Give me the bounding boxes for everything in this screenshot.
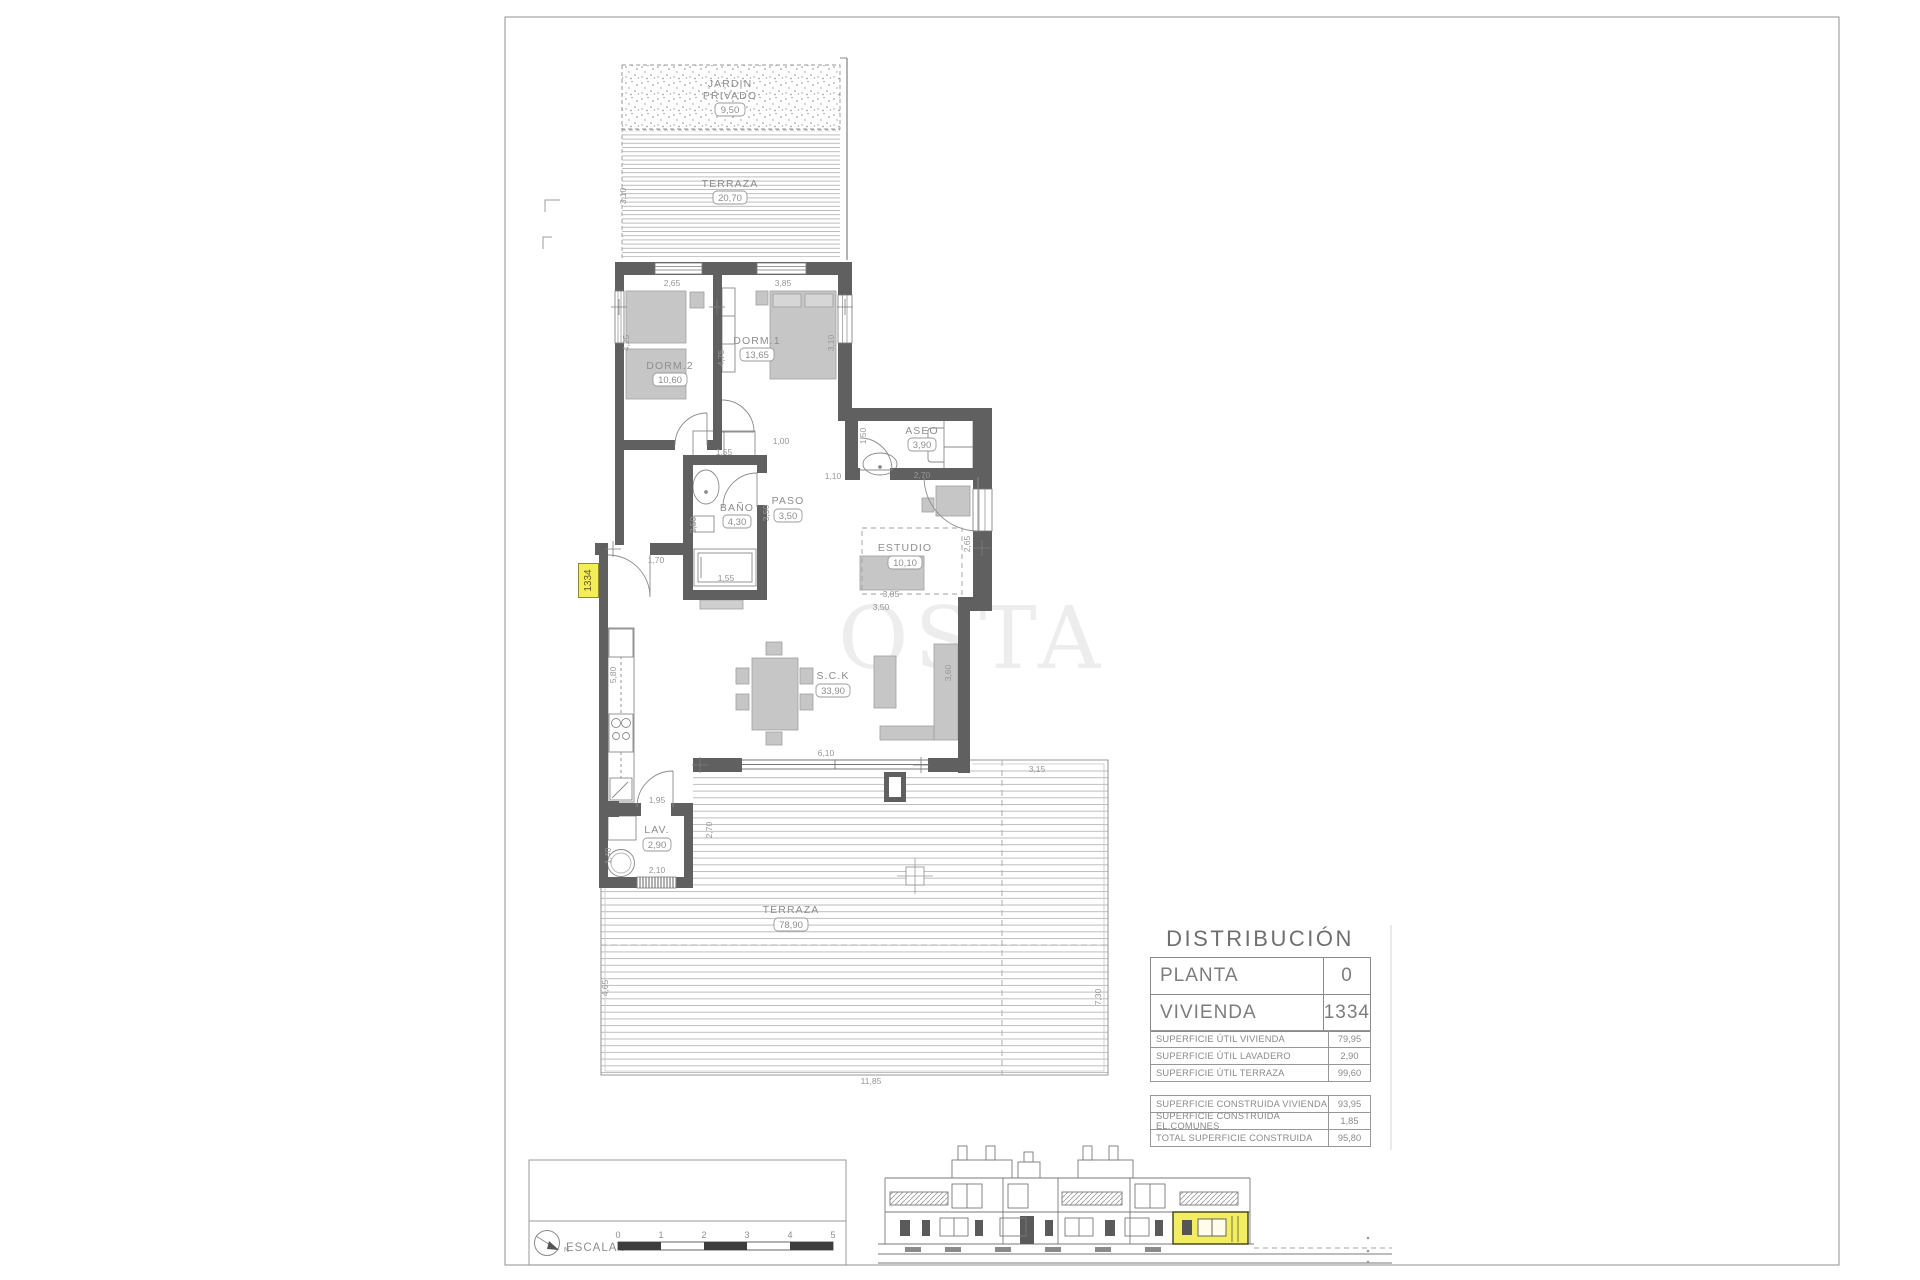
table-row: TOTAL SUPERFICIE CONSTRUIDA 95,80 [1151,1129,1370,1146]
surf-util-terraza-label: SUPERFICIE ÚTIL TERRAZA [1151,1068,1328,1078]
dim-dorm1-ancho: 3,10 [826,334,836,351]
scale-tick-4: 4 [787,1230,792,1240]
dim-dorm2-alto: 4,25 [621,334,631,351]
scale-tick-2: 2 [701,1230,706,1240]
nightstand-dorm1 [756,291,768,305]
bed-dorm2-a [626,291,686,343]
dim-terraza-ancho: 11,85 [861,1076,882,1086]
area-paso: 3,50 [779,511,798,522]
dim-paso-sup: 1,00 [773,436,790,446]
dim-lav-alto: 2,70 [704,821,714,838]
area-terraza-sup: 20,70 [718,193,742,204]
planta-value: 0 [1323,958,1370,994]
surf-built-total-label: TOTAL SUPERFICIE CONSTRUIDA [1151,1133,1328,1143]
area-estudio: 10,10 [893,558,917,569]
table-row: VIVIENDA 1334 [1151,994,1370,1031]
area-aseo: 3,90 [913,440,932,451]
surf-built-comunes-value: 1,85 [1328,1113,1370,1129]
sofa-chaise [880,726,934,740]
dim-bano-alto: 2,50 [688,516,698,533]
lav-counter [608,816,636,840]
dim-lav-ancho: 2,10 [649,865,666,875]
room-label-estudio: ESTUDIO [878,542,932,554]
room-label-jardin-2: PRIVADO [703,90,757,102]
dim-salon-ancho: 6,10 [818,748,835,758]
room-label-sck: S.C.K [817,670,850,682]
plan-sheet-screenshot: OSTA [0,0,1920,1280]
vivienda-label: VIVIENDA [1151,1002,1323,1024]
room-label-aseo: ASEO [905,425,939,437]
floor-plan-drawing: OSTA [0,0,1920,1280]
nightstand-dorm2 [690,292,704,308]
dim-aseo-alto: 1,50 [858,427,868,444]
table-row: SUPERFICIE CONSTRUIDA VIVIENDA 93,95 [1151,1096,1370,1112]
dim-aseo-ancho: 2,70 [914,470,931,480]
room-label-dorm2: DORM.2 [646,360,693,372]
table-row: SUPERFICIE ÚTIL VIVIENDA 79,95 [1151,1031,1370,1047]
table-row: SUPERFICIE CONSTRUIDA EL.COMUNES 1,85 [1151,1112,1370,1129]
area-dorm2: 10,60 [658,375,682,386]
dim-paso-aseo: 1,10 [825,471,842,481]
desk-estudio [936,486,970,516]
highlighted-unit [1173,1212,1248,1244]
scale-tick-5: 5 [830,1230,835,1240]
area-jardin: 9,50 [721,105,740,116]
dim-bano-ancho: 1,55 [718,573,735,583]
area-lav: 2,90 [648,840,667,851]
table-row: PLANTA 0 [1151,958,1370,994]
room-label-terraza-sup: TERRAZA [702,178,759,190]
room-label-dorm1: DORM.1 [733,335,780,347]
distribution-table: PLANTA 0 VIVIENDA 1334 [1150,957,1371,1032]
dim-armario-dorm2: 1,55 [716,447,733,457]
room-label-bano: BAÑO [720,501,754,514]
planta-label: PLANTA [1151,965,1323,987]
surf-built-total-value: 95,80 [1328,1130,1370,1146]
area-terraza-inf: 78,90 [779,920,803,931]
dim-estudio-alto: 2,65 [962,535,972,552]
surf-built-vivienda-value: 93,95 [1328,1096,1370,1112]
fridge [609,629,633,657]
dim-salon-alto: 3,60 [943,664,953,681]
surf-util-lavadero-value: 2,90 [1328,1048,1370,1064]
dim-terraza-der-alto: 7,30 [1093,988,1103,1005]
area-sck: 33,90 [821,686,845,697]
unit-number-tag: 1334 [578,563,599,598]
dim-cocina-alto: 5,80 [608,666,618,683]
surf-util-vivienda-label: SUPERFICIE ÚTIL VIVIENDA [1151,1034,1328,1044]
scale-tick-0: 0 [615,1230,620,1240]
useful-surface-table: SUPERFICIE ÚTIL VIVIENDA 79,95 SUPERFICI… [1150,1030,1371,1082]
room-label-jardin-1: JARDIN [708,78,753,90]
tv-bench [874,656,896,708]
lav-fence [637,877,676,888]
area-bano: 4,30 [728,517,747,528]
scale-tick-1: 1 [658,1230,663,1240]
room-label-lav: LAV. [644,824,669,836]
dim-paso-alto: 3,50 [761,504,771,521]
surf-util-lavadero-label: SUPERFICIE ÚTIL LAVADERO [1151,1051,1328,1061]
table-row: SUPERFICIE ÚTIL LAVADERO 2,90 [1151,1047,1370,1064]
surf-util-vivienda-value: 79,95 [1328,1031,1370,1047]
dim-vent-dorm2: 2,65 [664,278,681,288]
surf-built-vivienda-label: SUPERFICIE CONSTRUIDA VIVIENDA [1151,1099,1328,1109]
dim-terraza-sup-alto: 3,10 [618,187,628,204]
basin-bano [693,470,719,504]
scale-tick-3: 3 [744,1230,749,1240]
dining-table [752,658,798,730]
mat [700,600,743,609]
surf-built-comunes-label: SUPERFICIE CONSTRUIDA EL.COMUNES [1151,1111,1328,1131]
dim-estudio-ancho: 3,85 [883,589,900,599]
room-label-paso: PASO [772,495,805,507]
sofa [934,644,958,740]
distribution-title: DISTRIBUCIÓN [1150,926,1370,952]
surf-util-terraza-value: 99,60 [1328,1065,1370,1081]
dim-dorm1-alto: 4,75 [716,349,726,366]
escala-label: ESCALA : [566,1242,625,1254]
vivienda-value: 1334 [1323,995,1370,1031]
dim-terraza-izq-alto: 4,65 [600,979,610,996]
table-row: SUPERFICIE ÚTIL TERRAZA 99,60 [1151,1064,1370,1081]
dim-lavadora: 1,40 [603,847,613,864]
room-label-terraza-inf: TERRAZA [763,904,820,916]
built-surface-table: SUPERFICIE CONSTRUIDA VIVIENDA 93,95 SUP… [1150,1095,1371,1147]
dim-vent-dorm1: 3,85 [775,278,792,288]
dim-estudio-inf: 3,50 [873,602,890,612]
dim-terraza-sup-der: 3,15 [1029,764,1046,774]
dim-entrada: 1,70 [648,555,665,565]
area-dorm1: 13,65 [745,350,769,361]
dim-lav-puerta: 1,95 [649,795,666,805]
